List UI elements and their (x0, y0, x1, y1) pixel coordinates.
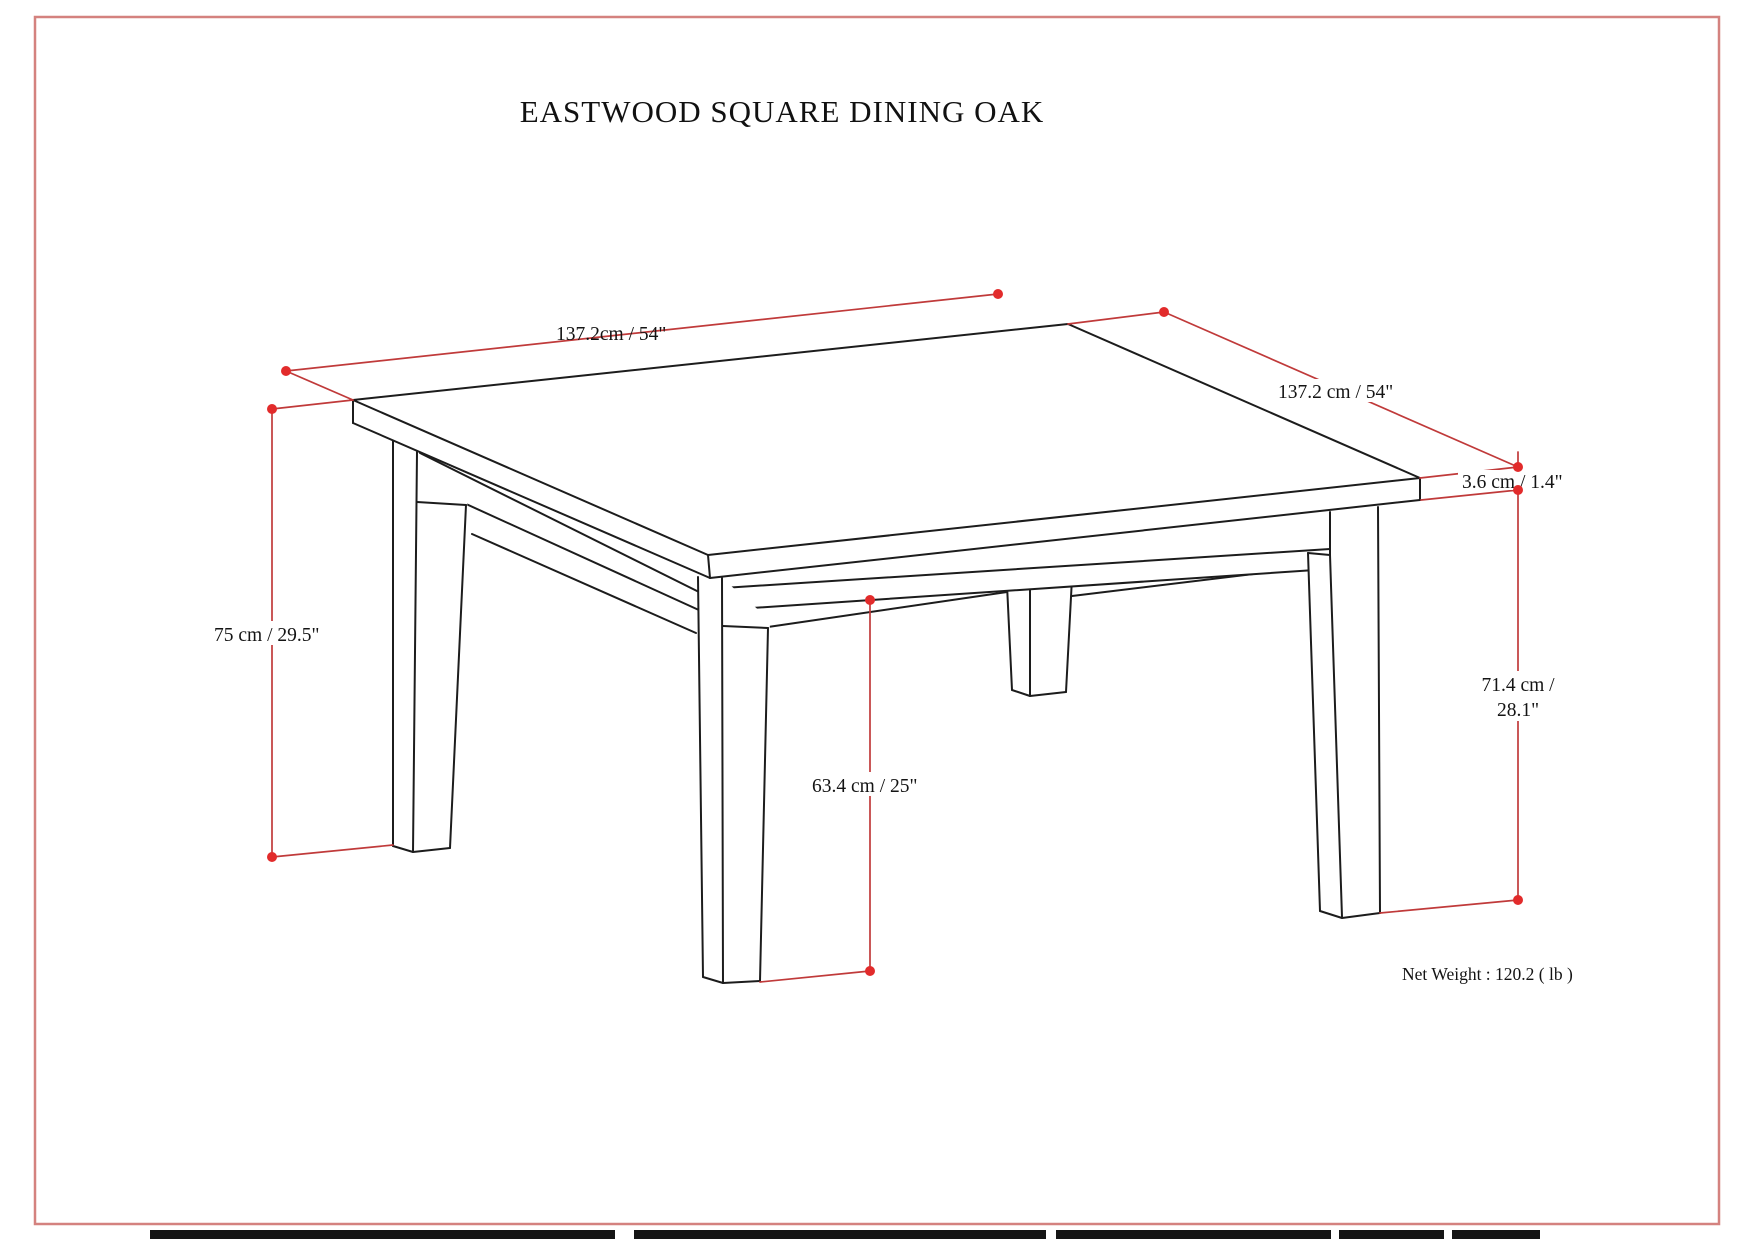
scan-artifact-bars (150, 1230, 1540, 1239)
table-leg-left (393, 441, 468, 852)
label-leg-height-line2: 28.1" (1497, 700, 1539, 721)
net-weight-note: Net Weight : 120.2 ( lb ) (1402, 964, 1573, 984)
label-side-length: 137.2 cm / 54" (1278, 382, 1393, 403)
label-leg-height-line1: 71.4 cm / (1481, 675, 1555, 696)
page-title: EASTWOOD SQUARE DINING OAK (520, 94, 1045, 129)
diagram-page: 137.2cm / 54" 137.2 cm / 54" 3.6 cm / 1.… (0, 0, 1755, 1241)
table-drawing (353, 324, 1420, 983)
table-top (353, 324, 1420, 578)
page-border (35, 17, 1719, 1224)
dimension-diagram-canvas: 137.2cm / 54" 137.2 cm / 54" 3.6 cm / 1.… (0, 0, 1755, 1241)
label-top-length: 137.2cm / 54" (556, 324, 666, 345)
label-floor-clearance: 63.4 cm / 25" (812, 776, 917, 797)
label-top-thickness: 3.6 cm / 1.4" (1462, 472, 1563, 493)
table-back-leg (1007, 578, 1072, 696)
table-leg-front (698, 577, 770, 983)
label-overall-height: 75 cm / 29.5" (214, 625, 319, 646)
table-leg-right (1308, 507, 1380, 918)
